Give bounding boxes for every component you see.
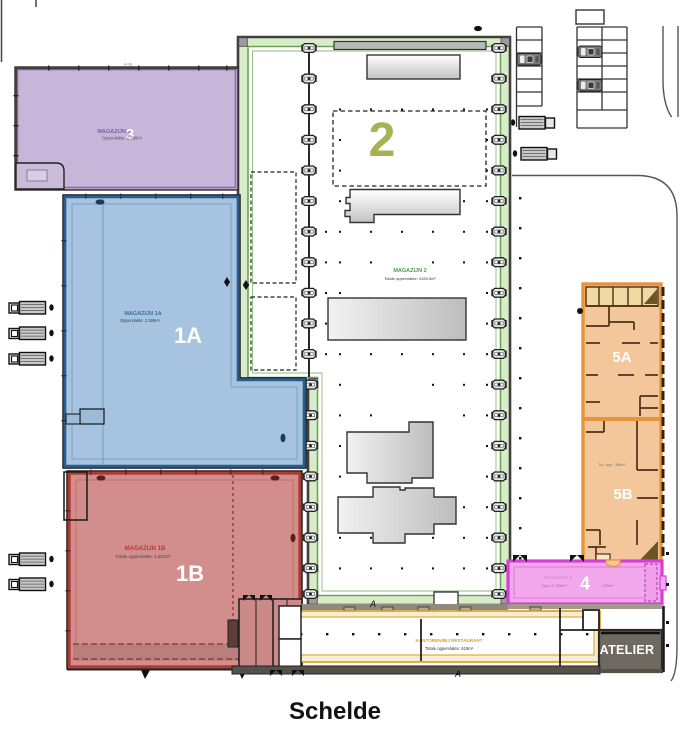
svg-text:ATELIER: ATELIER [600, 643, 655, 657]
svg-text:MAGAZIJN 4: MAGAZIJN 4 [544, 575, 572, 580]
svg-text:Opp. 4: 290m²: Opp. 4: 290m² [541, 583, 567, 588]
svg-text:MAGAZIJN 2: MAGAZIJN 2 [393, 268, 426, 274]
svg-text:Totale oppervlakte: 1.822m²: Totale oppervlakte: 1.822m² [115, 554, 171, 559]
svg-text:MAGAZIJN 1B: MAGAZIJN 1B [125, 546, 166, 552]
svg-text:Oppervlakte: 2.369m²: Oppervlakte: 2.369m² [120, 318, 161, 323]
svg-text:44.88: 44.88 [124, 63, 133, 67]
svg-text:4: 4 [580, 574, 590, 594]
svg-text:1B: 1B [176, 561, 204, 586]
svg-text:Schelde: Schelde [289, 698, 381, 725]
svg-text:1A: 1A [174, 323, 202, 348]
svg-text:2: 2 [369, 114, 396, 167]
svg-text:Totale oppervlakte: 4153.9m²: Totale oppervlakte: 4153.9m² [384, 276, 436, 281]
svg-text:A: A [454, 669, 461, 679]
svg-text:KANTOREN/BIJ RESTAURANT: KANTOREN/BIJ RESTAURANT [416, 638, 483, 643]
svg-text:5A: 5A [612, 349, 631, 366]
svg-text:Totale oppervlakte: 619m²: Totale oppervlakte: 619m² [425, 646, 474, 651]
svg-text:- 290m²: - 290m² [600, 583, 614, 588]
svg-text:MAGAZIJN 1A: MAGAZIJN 1A [124, 311, 161, 317]
svg-text:Tot. opp.: 386m²: Tot. opp.: 386m² [598, 463, 626, 467]
svg-text:5B: 5B [613, 486, 632, 503]
svg-text:A: A [369, 599, 376, 609]
svg-text:Oppervlakte: 2.366m²: Oppervlakte: 2.366m² [102, 136, 143, 141]
